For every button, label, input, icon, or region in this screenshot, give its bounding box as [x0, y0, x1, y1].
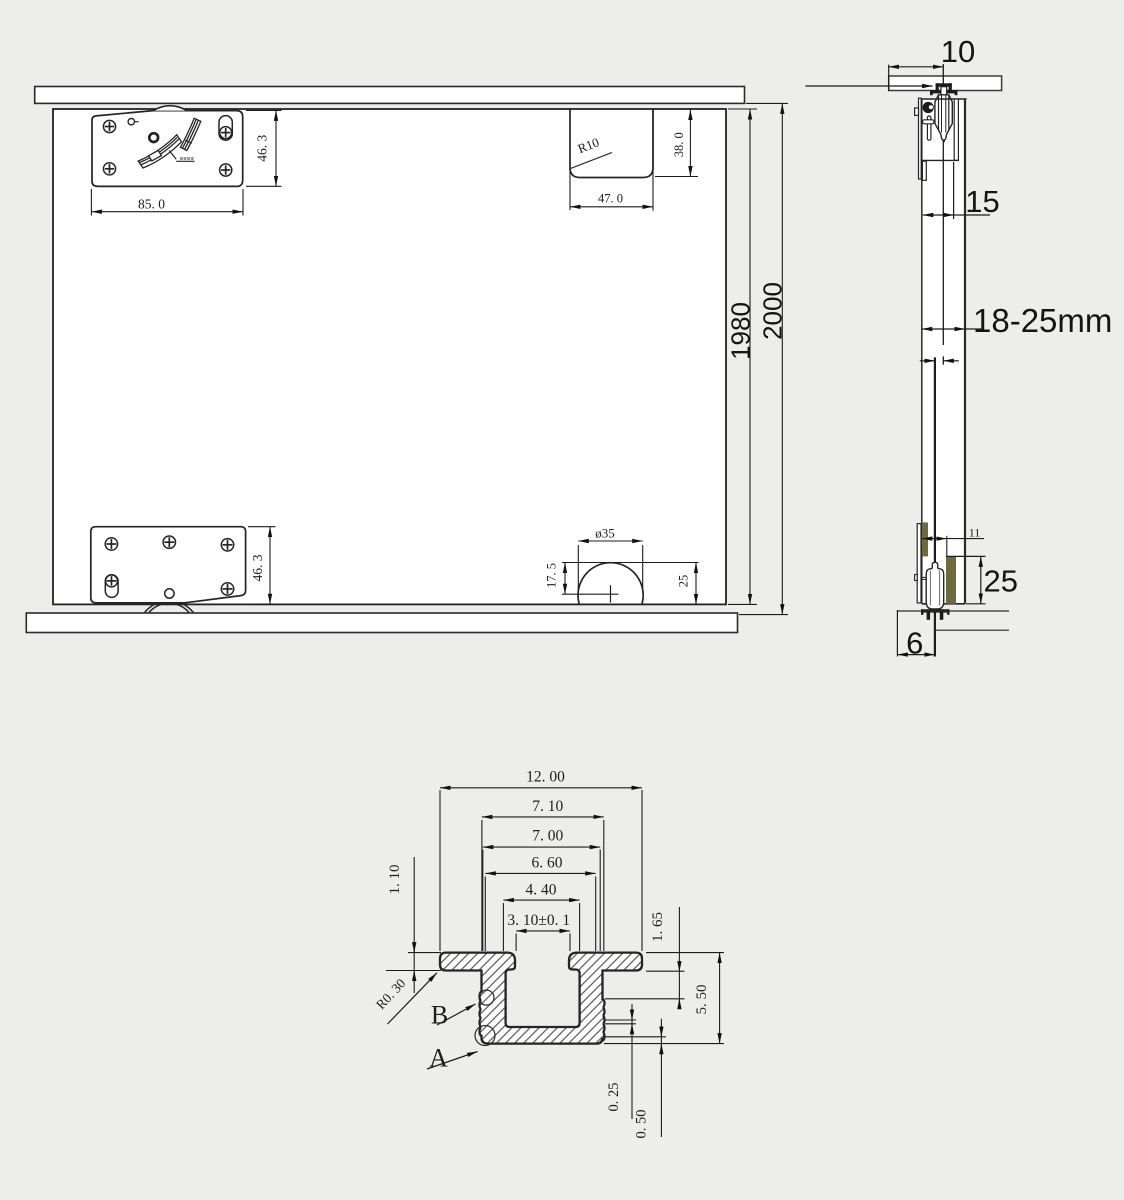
svg-text:1980: 1980: [726, 302, 756, 360]
svg-text:10: 10: [941, 34, 975, 69]
svg-text:25: 25: [984, 564, 1018, 599]
svg-text:7. 10: 7. 10: [532, 798, 563, 815]
svg-text:1. 65: 1. 65: [650, 912, 666, 942]
svg-text:38. 0: 38. 0: [672, 132, 686, 157]
svg-text:12. 00: 12. 00: [526, 769, 565, 786]
svg-text:4. 40: 4. 40: [526, 882, 557, 899]
svg-text:ø35: ø35: [595, 526, 615, 541]
svg-text:46. 3: 46. 3: [250, 554, 265, 581]
svg-text:6: 6: [906, 626, 923, 661]
svg-text:0. 25: 0. 25: [606, 1083, 622, 1112]
svg-text:5. 50: 5. 50: [694, 985, 710, 1015]
svg-text:6. 60: 6. 60: [532, 855, 563, 872]
svg-text:11: 11: [969, 526, 981, 540]
svg-text:85. 0: 85. 0: [138, 196, 165, 211]
svg-text:46. 3: 46. 3: [255, 134, 270, 161]
svg-text:18-25mm: 18-25mm: [973, 302, 1112, 339]
svg-text:0. 50: 0. 50: [634, 1110, 650, 1139]
svg-text:2000: 2000: [758, 282, 788, 340]
svg-text:A: A: [429, 1044, 448, 1073]
svg-text:25: 25: [677, 575, 691, 588]
svg-text:17. 5: 17. 5: [545, 563, 559, 588]
svg-text:1. 10: 1. 10: [387, 865, 403, 895]
svg-text:15: 15: [965, 184, 999, 219]
svg-text:B: B: [431, 1001, 448, 1030]
svg-text:7. 00: 7. 00: [532, 828, 563, 845]
svg-text:3. 10±0. 1: 3. 10±0. 1: [507, 912, 570, 929]
svg-text:47. 0: 47. 0: [598, 192, 623, 206]
